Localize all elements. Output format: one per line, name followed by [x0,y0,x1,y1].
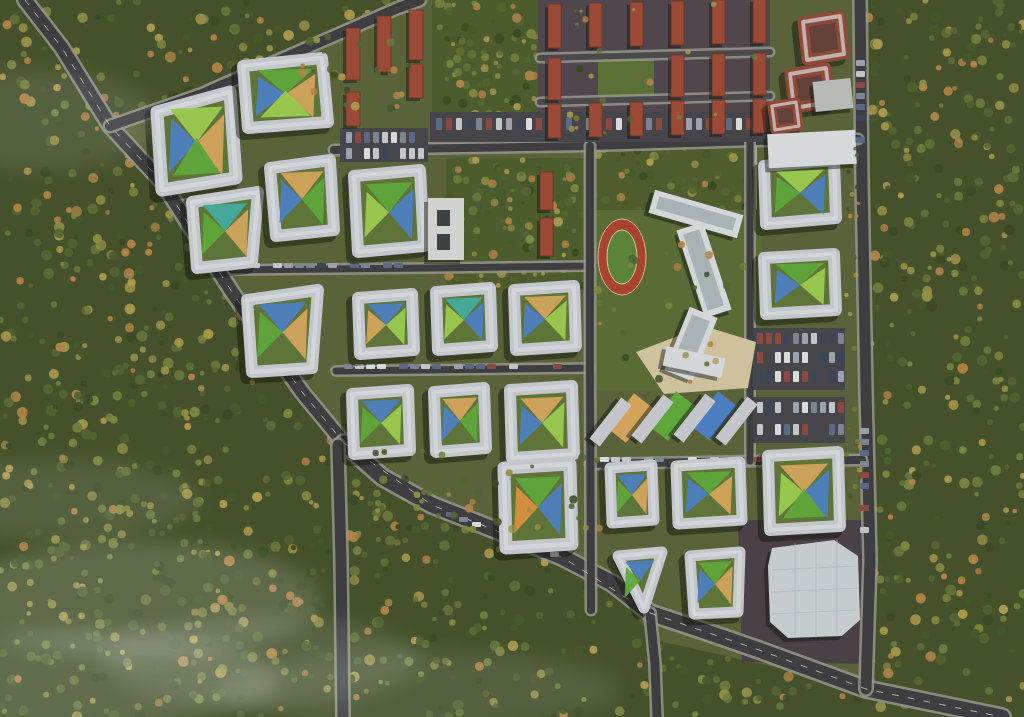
parked-car [346,132,352,143]
tree [597,300,604,307]
tree [313,526,321,534]
tree [692,176,697,181]
tree [886,531,895,540]
tree [447,492,451,496]
tree [721,187,730,196]
tree [509,581,520,592]
tree [872,39,883,50]
parked-car [838,352,844,363]
tree [528,175,535,182]
tree [995,352,1004,361]
tree [502,226,506,230]
tree [572,249,580,257]
tree [267,45,273,51]
parked-car [784,371,790,382]
tree [674,263,682,271]
tree [986,593,991,598]
tree [152,306,157,311]
tree [1002,386,1008,392]
tree [958,262,967,271]
parked-car [766,371,772,382]
tree [578,454,586,462]
tree [692,711,698,717]
tree [55,64,61,70]
tree [888,653,893,658]
tree [490,88,497,95]
tree [479,205,483,209]
tree [88,173,98,183]
tree [959,478,970,489]
tree [922,286,932,296]
tree [375,508,380,513]
tree [28,332,34,338]
tree [390,66,397,73]
tree [96,240,107,251]
tree [591,620,596,625]
tree [959,446,967,454]
tree [108,188,114,194]
tree [19,23,28,32]
parked-car [418,148,424,159]
tree [941,574,947,580]
tree [158,401,167,410]
tree [355,531,361,537]
tree [73,341,81,349]
tree [939,103,943,107]
tree [446,60,454,68]
tree [119,239,125,245]
tree [935,654,946,665]
tree [325,548,331,554]
tree [512,13,522,23]
tree [683,352,689,358]
parked-car [328,263,337,268]
tree [569,495,577,503]
tree [846,207,850,211]
tree [681,186,688,193]
tree [640,681,648,689]
tree [525,71,535,81]
tree [1010,200,1016,206]
tree [462,526,470,534]
tree [972,477,983,488]
tree [281,471,291,481]
tree [627,116,633,122]
tree [1010,392,1021,403]
townhouse [540,218,553,256]
parked-car [856,137,865,143]
tree [527,508,532,513]
tree [981,30,990,39]
tree [124,304,135,315]
tree [691,161,698,168]
tree [414,492,421,499]
tree [939,644,948,653]
tree [496,167,500,171]
tree [479,273,484,278]
tree [478,91,486,99]
tree [851,255,857,261]
parked-car [860,483,869,489]
parked-car [394,263,403,268]
parked-car [364,132,370,143]
parked-car [373,132,379,143]
tree [756,695,762,701]
tree [966,186,976,196]
tree [77,12,87,22]
parked-car [686,118,692,130]
tree [629,692,635,698]
parked-car [295,263,304,268]
tree [429,634,437,642]
tree [416,637,424,645]
tree [931,113,938,120]
tree [87,204,98,215]
tree [368,501,373,506]
tree [1001,245,1006,250]
tree [888,127,896,135]
tree [962,52,973,63]
tree [472,252,477,257]
tree [922,274,930,282]
tree [917,643,924,650]
tree [685,49,690,54]
tree [940,440,951,451]
tree [86,259,94,267]
tree [439,540,450,551]
tree [723,282,731,290]
parked-car [432,364,441,369]
tree [488,179,497,188]
tree [931,616,939,624]
parked-car [317,263,326,268]
tree [707,659,713,665]
tree [447,577,453,583]
tree [140,347,146,353]
tree [444,36,450,42]
tree [978,633,989,644]
parked-car [655,457,664,462]
tree [582,16,588,22]
tree [48,433,54,439]
tree [996,368,1003,375]
tree [19,542,28,551]
tree [157,40,166,49]
tree [130,183,135,188]
tree [926,651,936,661]
tree [310,543,315,548]
tree [395,104,400,109]
tree [223,410,233,420]
tree [704,361,709,366]
tree [147,24,155,32]
tree [125,323,134,332]
tree [994,406,999,411]
tree [421,489,427,495]
tree [244,527,253,536]
tree [200,371,205,376]
tree [22,316,29,323]
tree [374,71,381,78]
parked-car [346,148,352,159]
tree [887,355,895,363]
tree [265,492,270,497]
tree [960,336,970,346]
tree [443,96,452,105]
tree [672,702,678,708]
tree [688,185,697,194]
tree [904,75,911,82]
tree [484,36,490,42]
tree [994,184,1004,194]
tree [8,176,13,181]
parked-car [757,352,763,363]
tree [160,531,165,536]
tree [263,476,270,483]
parked-car [391,132,397,143]
tree [419,499,423,503]
tree [853,147,857,151]
tree [945,585,956,596]
tree [918,386,926,394]
tree [583,525,589,531]
tree [677,176,686,185]
parked-car [696,118,702,130]
tree [932,463,937,468]
tree [891,140,900,149]
tree [959,287,968,296]
tree [984,107,994,117]
tree [569,126,575,132]
tree [519,171,524,176]
tree [708,181,717,190]
tree [84,24,88,28]
tree [950,254,960,264]
tree [72,422,82,432]
tree [985,687,993,695]
tree [414,504,421,511]
tree [847,430,852,435]
tree [1012,166,1020,174]
tree [968,554,978,564]
tree [161,446,171,456]
tree [702,676,711,685]
tree [950,27,958,35]
tree [688,379,692,383]
parked-car [377,364,386,369]
tree [411,526,419,534]
tree [222,364,230,372]
tree [928,576,934,582]
parked-car [802,402,808,413]
parked-car [802,352,808,363]
tree [929,35,935,41]
tree [5,230,11,236]
tree [548,588,553,593]
tree [81,380,87,386]
tree [667,182,675,190]
tree [43,384,54,395]
tree [500,610,506,616]
tree [368,56,374,62]
parked-car [284,263,293,268]
tree [566,610,574,618]
tree [439,610,445,616]
tree [474,487,482,495]
gray-outbuilding [813,78,854,112]
tree [123,363,129,369]
tree [590,646,598,654]
parked-car [838,371,844,382]
tree [664,251,669,256]
tree [922,631,930,639]
tree [693,285,698,290]
tree [947,363,954,370]
tree [564,197,573,206]
tree [380,558,388,566]
tree [877,206,887,216]
tree [907,267,915,275]
tree [200,391,206,397]
tree [188,17,192,21]
tree [858,476,861,479]
tree [713,676,720,683]
tree [128,399,136,407]
tree [198,539,203,544]
tree [954,178,962,186]
tree [1013,509,1018,514]
tree [950,129,960,139]
tree [879,257,889,267]
tree [463,63,471,71]
parked-car [757,424,763,435]
tree [257,17,264,24]
tree [108,284,116,292]
tree [576,65,583,72]
tree [880,627,888,635]
tree [68,169,76,177]
tree [468,206,478,216]
tree [985,543,994,552]
tree [70,276,75,281]
townhouse [589,3,602,47]
tree [466,39,475,48]
tree [524,586,535,597]
tree [989,154,995,160]
tree [906,138,913,145]
tree [1000,616,1007,623]
tree [988,38,993,43]
parked-car [736,118,742,130]
tree [321,568,326,573]
tree [1015,23,1022,30]
tree [125,282,136,293]
tree [533,272,538,277]
parked-car [775,424,781,435]
tree [944,197,950,203]
tree [493,518,501,526]
tree [42,46,47,51]
tree [508,239,513,244]
tree [974,177,983,186]
tree [304,11,312,19]
tree [311,88,318,95]
tree [71,214,76,219]
tree [151,223,160,232]
tree [96,195,106,205]
tree [206,299,211,304]
tree [904,402,912,410]
tree [387,104,395,112]
tree [655,375,663,383]
tree [1,331,11,341]
tree [350,575,360,585]
tree [477,99,484,106]
tree [870,69,877,76]
tree [883,399,889,405]
tree [473,227,480,234]
tree [578,614,582,618]
tree [889,227,898,236]
tree [705,251,713,259]
tree [485,210,492,217]
tree [906,384,912,390]
tree [451,42,455,46]
parked-car [409,132,415,143]
tree [957,363,968,374]
tree [916,593,926,603]
tree [899,480,905,486]
tree [907,82,918,93]
tree [156,321,165,330]
tree [78,348,88,358]
tree [252,492,262,502]
tree [1008,377,1017,386]
tree [971,275,977,281]
tree [530,465,534,469]
parked-car [829,333,835,344]
tree [848,214,853,219]
tree [82,343,87,348]
townhouse [712,100,725,134]
tree [124,268,135,279]
tree [563,177,567,181]
tree [912,445,921,454]
tree [284,535,294,545]
tree [299,20,310,31]
tree [894,546,905,557]
tree [871,117,877,123]
tree [16,277,23,284]
tree [870,61,880,71]
tree [145,249,152,256]
tree [640,172,648,180]
tree [999,213,1006,220]
townhouse [409,10,423,60]
parked-car [829,371,835,382]
tree [226,492,237,503]
tree [133,71,140,78]
tree [991,465,1002,476]
tree [472,193,481,202]
tree [482,626,487,631]
parked-car [860,527,869,533]
tree [522,82,529,89]
tree [454,68,462,76]
tree [971,34,981,44]
tree [456,80,464,88]
tree [974,492,979,497]
